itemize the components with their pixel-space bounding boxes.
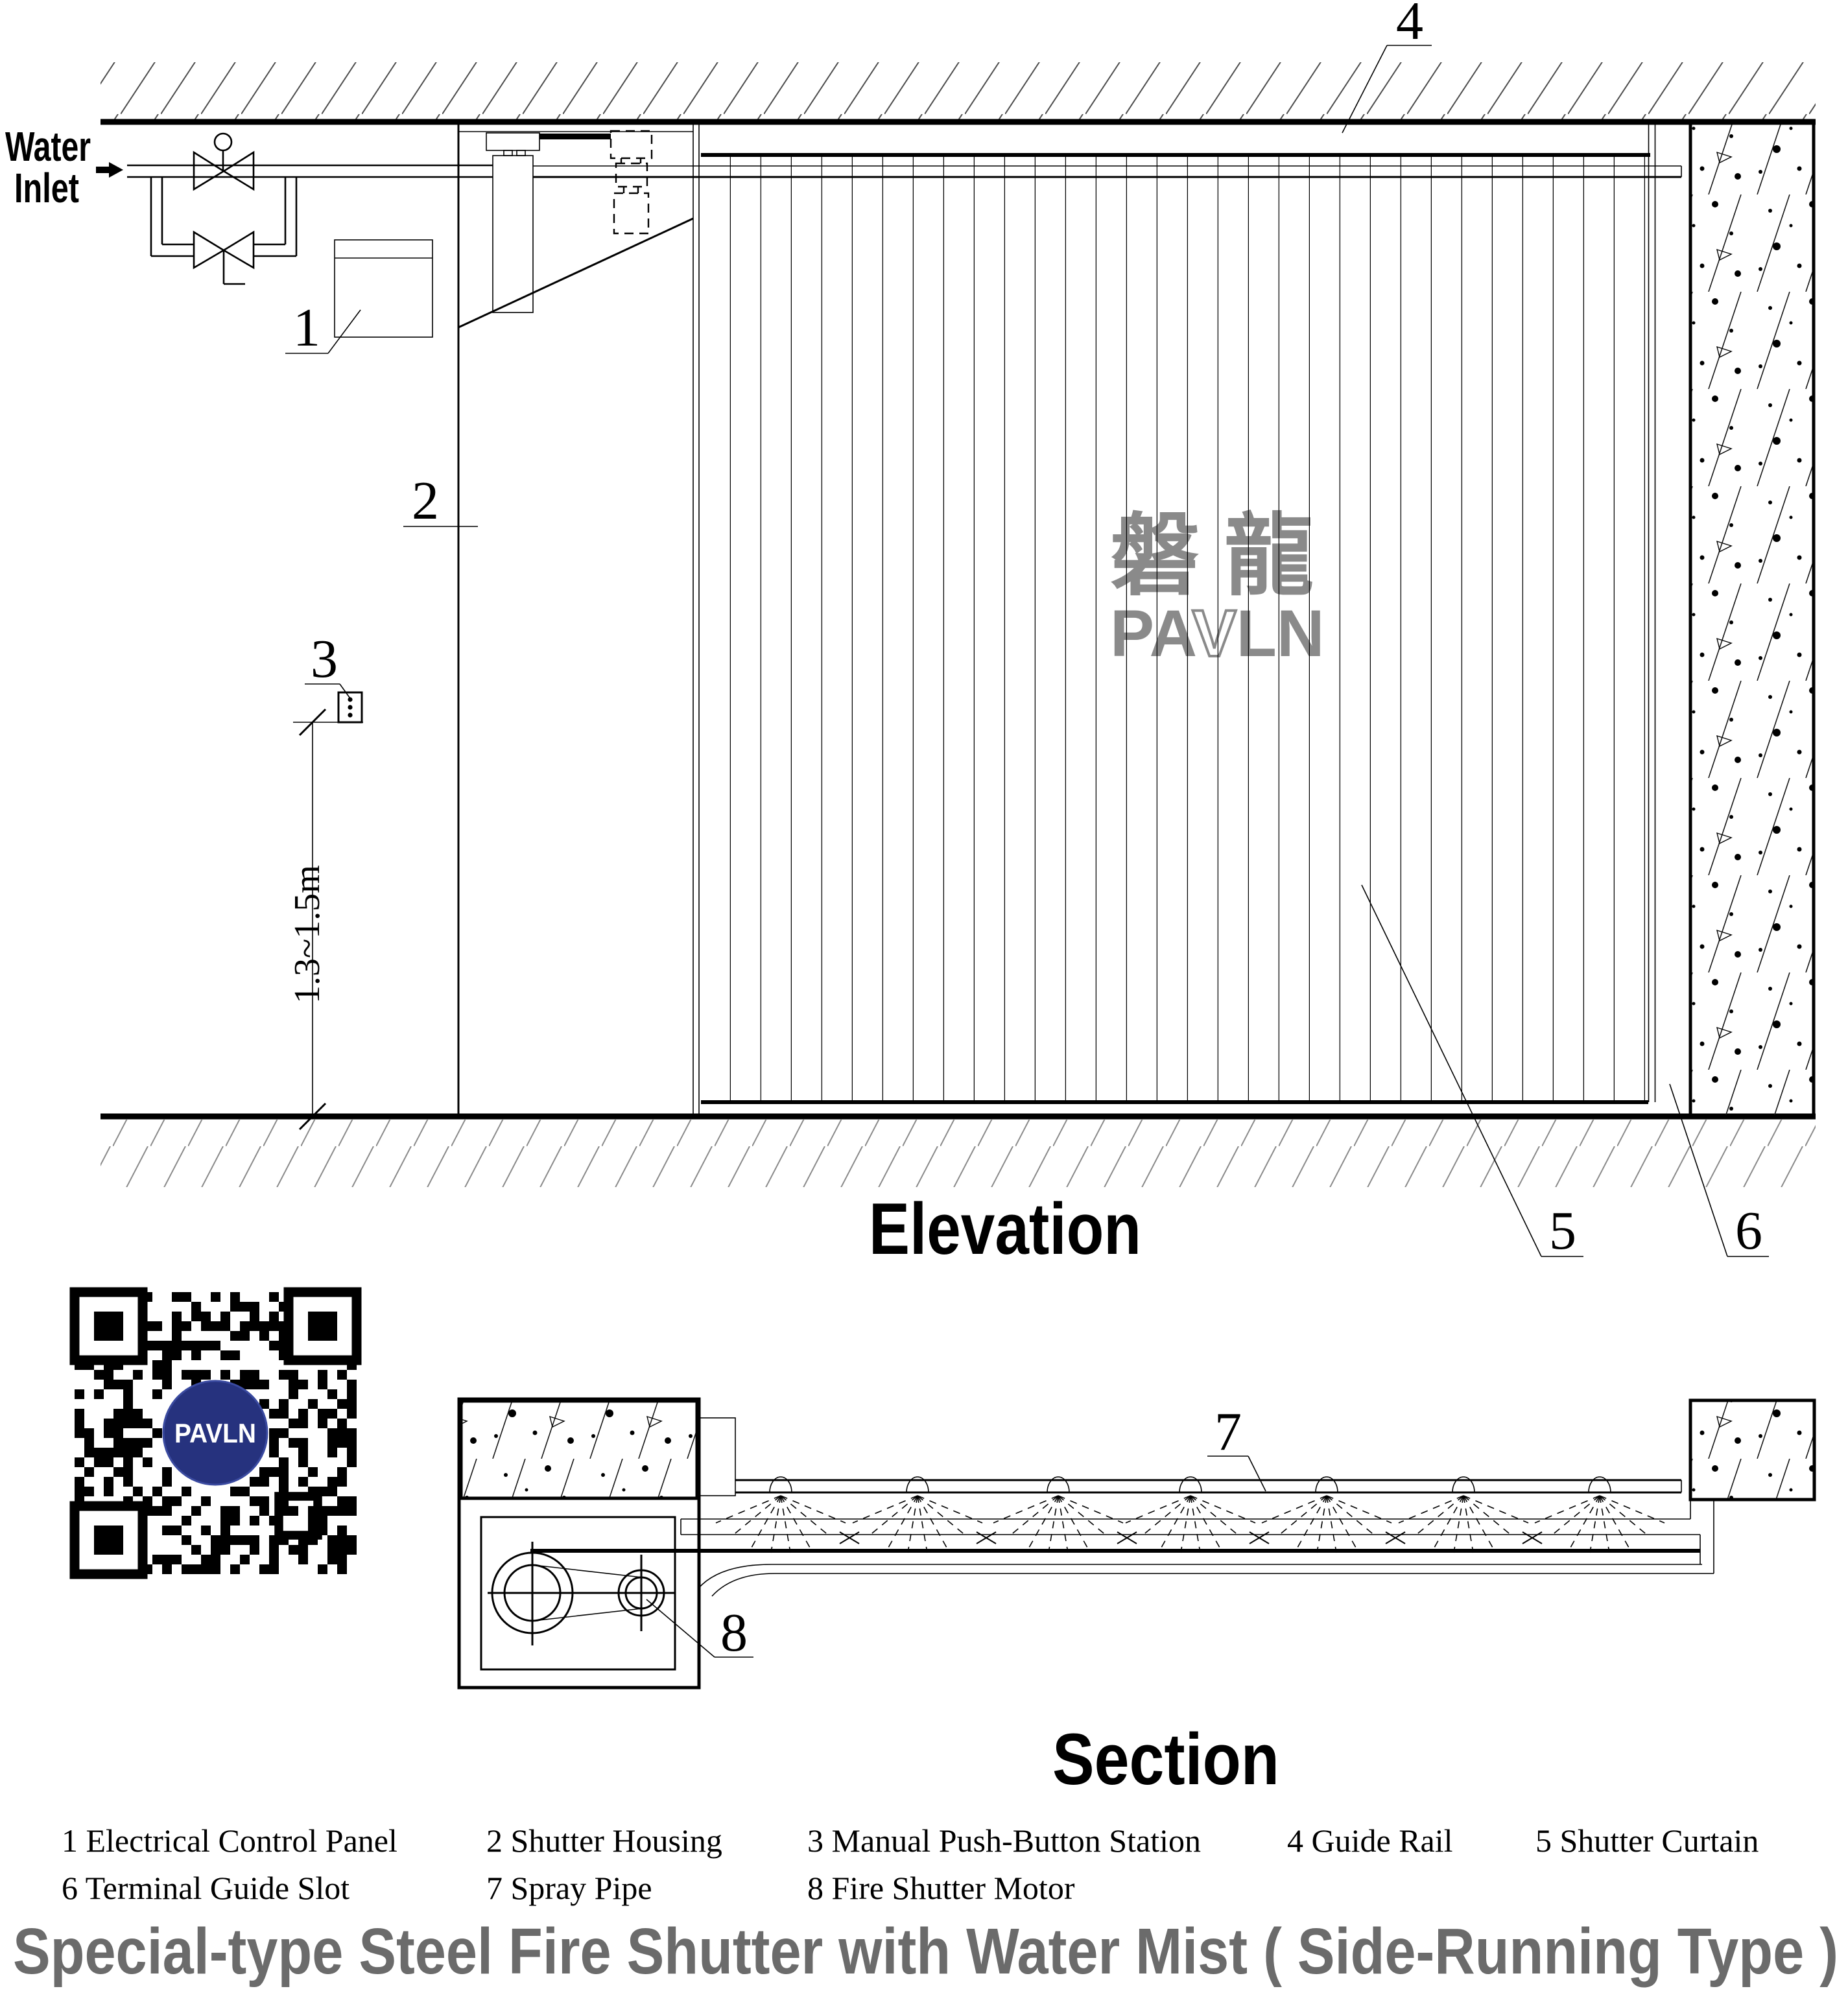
callout-7: 7 xyxy=(1207,1402,1266,1491)
qr-code: PAVLN xyxy=(75,1292,357,1574)
drawing-sheet: 磐龍 PAVLN xyxy=(0,0,1848,1991)
legend-item-8: 8 Fire Shutter Motor xyxy=(807,1870,1075,1906)
callout-3-number: 3 xyxy=(311,629,338,689)
spray-pipe xyxy=(716,1477,1681,1553)
water-inlet-piping: Water Inlet xyxy=(5,123,493,284)
shutter-housing xyxy=(458,122,699,1116)
water-inlet-label-1: Water xyxy=(5,123,91,170)
legend-item-7: 7 Spray Pipe xyxy=(486,1870,652,1906)
section-curtain-and-slot xyxy=(530,1400,1814,1596)
section-view: 7 8 Section xyxy=(459,1399,1814,1800)
legend-item-3: 3 Manual Push-Button Station xyxy=(807,1822,1201,1859)
callout-8-number: 8 xyxy=(720,1603,748,1663)
callout-2: 2 xyxy=(403,471,478,531)
legend-item-4: 4 Guide Rail xyxy=(1287,1822,1453,1859)
callout-7-number: 7 xyxy=(1214,1402,1242,1462)
legend-item-6: 6 Terminal Guide Slot xyxy=(62,1870,349,1906)
dimension-label: 1.3~1.5m xyxy=(287,865,327,1004)
legend: 1 Electrical Control Panel 2 Shutter Hou… xyxy=(62,1822,1759,1906)
legend-item-2: 2 Shutter Housing xyxy=(486,1822,722,1859)
section-label: Section xyxy=(1052,1719,1279,1800)
water-inlet-arrow-icon xyxy=(96,162,123,178)
terminal-guide-slot-wall xyxy=(1649,122,1814,1116)
elevation-view: 磐龍 PAVLN xyxy=(5,0,1816,1269)
elevation-label: Elevation xyxy=(869,1188,1141,1269)
sprinkler-assembly xyxy=(611,131,652,233)
fire-shutter-drawing: 磐龍 PAVLN xyxy=(0,0,1848,1991)
legend-item-1: 1 Electrical Control Panel xyxy=(62,1822,397,1859)
water-inlet-label-2: Inlet xyxy=(14,165,79,211)
callout-4-number: 4 xyxy=(1396,0,1423,51)
legend-item-5: 5 Shutter Curtain xyxy=(1535,1822,1759,1859)
shutter-curtain xyxy=(701,157,1648,1102)
callout-2-number: 2 xyxy=(412,471,439,531)
push-button-station xyxy=(338,692,362,722)
drawing-title: Special-type Steel Fire Shutter with Wat… xyxy=(13,1915,1838,1988)
callout-3: 3 xyxy=(305,629,351,700)
qr-badge-label: PAVLN xyxy=(174,1418,256,1448)
callout-1: 1 xyxy=(285,298,361,358)
floor-hatch xyxy=(101,1116,1816,1187)
section-wall-block xyxy=(1690,1400,1814,1500)
callout-6-number: 6 xyxy=(1735,1201,1762,1261)
section-housing xyxy=(459,1399,735,1688)
nozzle-array xyxy=(716,1477,1664,1553)
fire-shutter-motor xyxy=(488,1542,674,1645)
mounting-height-dimension: 1.3~1.5m xyxy=(287,709,363,1129)
valve-icon xyxy=(194,134,254,189)
callout-1-number: 1 xyxy=(293,298,320,358)
callout-5-number: 5 xyxy=(1549,1201,1576,1261)
control-panel xyxy=(335,240,432,337)
bypass-valve-icon xyxy=(194,232,254,284)
ceiling-hatch xyxy=(101,62,1816,122)
